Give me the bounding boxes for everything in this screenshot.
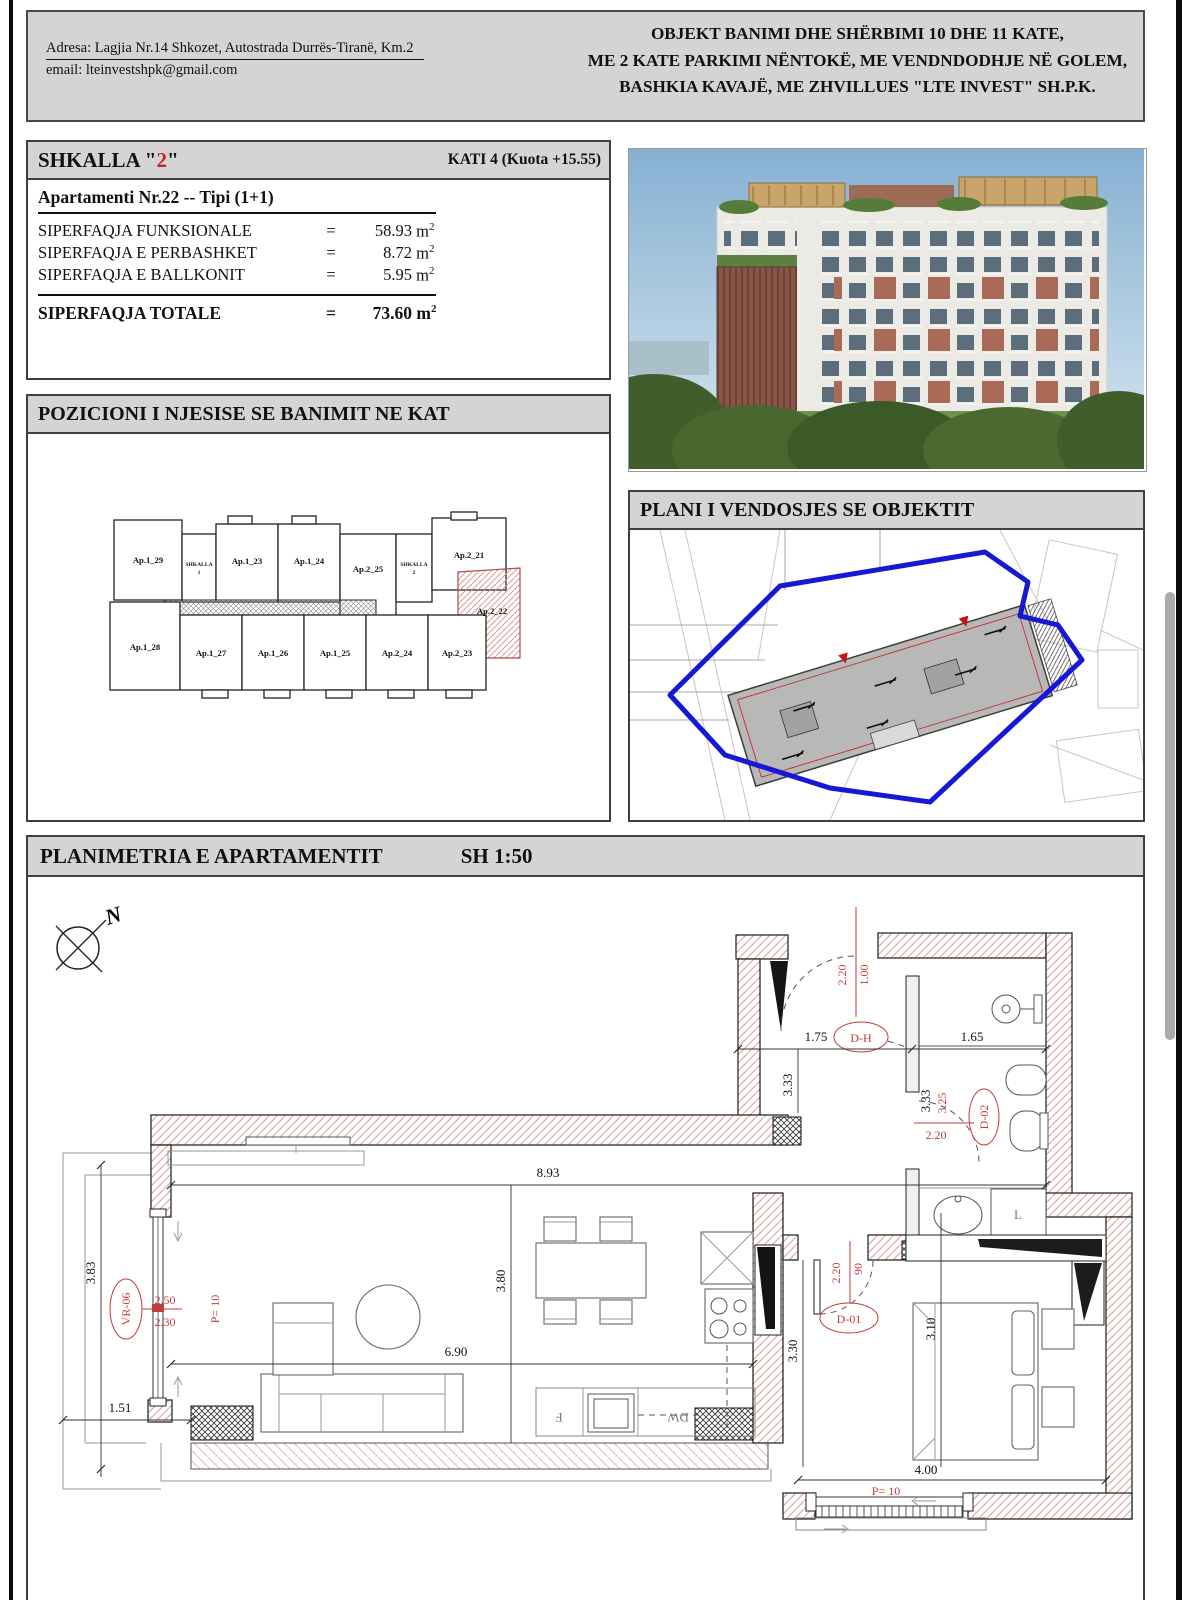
stair1-label: SHKALLA — [185, 562, 212, 568]
window-vr06 — [150, 1209, 182, 1406]
svg-text:N: N — [101, 901, 126, 930]
svg-text:6.90: 6.90 — [445, 1344, 468, 1359]
building-footprint — [726, 591, 1078, 786]
site-plan-title: PLANI I VENDOSJES SE OBJEKTIT — [630, 492, 1143, 530]
svg-text:D-H: D-H — [850, 1031, 872, 1045]
project-title-line1: OBJEKT BANIMI DHE SHËRBIMI 10 DHE 11 KAT… — [651, 24, 1064, 43]
svg-text:2.20: 2.20 — [835, 965, 849, 986]
unit-card-body: Apartamenti Nr.22 -- Tipi (1+1) SIPERFAQ… — [28, 180, 609, 325]
column — [773, 1117, 801, 1145]
tv-cabinet — [168, 1151, 364, 1165]
svg-text:3.10: 3.10 — [923, 1318, 938, 1341]
svg-text:D-01: D-01 — [837, 1312, 862, 1326]
svg-text:D-02: D-02 — [977, 1105, 991, 1130]
stair-number: 2 — [156, 148, 167, 172]
stair2-label: SHKALLA — [400, 562, 427, 568]
unit-label: Ap.1_28 — [130, 642, 161, 652]
svg-text:1.75: 1.75 — [805, 1029, 828, 1044]
project-title-line2: ME 2 KATE PARKIMI NËNTOKË, ME VENDNDODHJ… — [588, 51, 1127, 70]
svg-text:3.80: 3.80 — [493, 1270, 508, 1293]
unit-label: Ap.1_24 — [294, 556, 325, 566]
svg-text:3.33: 3.33 — [780, 1074, 795, 1097]
svg-text:2.20: 2.20 — [926, 1128, 947, 1142]
divider — [38, 212, 436, 214]
area-row: SIPERFAQJA FUNKSIONALE = 58.93 m2 — [38, 220, 595, 242]
svg-text:3.83: 3.83 — [83, 1262, 98, 1285]
svg-text:P= 10: P= 10 — [208, 1295, 222, 1323]
building-render-photo — [628, 148, 1147, 472]
svg-text:2.50: 2.50 — [155, 1293, 176, 1307]
nightstand — [1042, 1309, 1074, 1349]
svg-text:2.30: 2.30 — [155, 1315, 176, 1329]
page-left-edge — [9, 0, 13, 1600]
svg-text:2: 2 — [413, 570, 416, 576]
area-row: SIPERFAQJA E BALLKONIT = 5.95 m2 — [38, 264, 595, 286]
position-section: POZICIONI I NJESISE SE BANIMIT NE KAT — [26, 394, 611, 822]
building-render — [629, 149, 1144, 469]
svg-text:3.30: 3.30 — [785, 1340, 800, 1363]
unit-label: Ap.1_23 — [232, 556, 262, 566]
floor-key-plan: Ap.1_29 SHKALLA 1 Ap.1_23 Ap.1_24 Ap.2_2… — [106, 506, 534, 721]
unit-label: Ap.1_26 — [258, 648, 289, 658]
boiler-icon — [1006, 1065, 1046, 1095]
pillow — [1012, 1311, 1034, 1375]
unit-label: Ap.1_29 — [133, 555, 163, 565]
laundry-label: L — [1014, 1207, 1022, 1222]
apartment-plan-title: PLANIMETRIA E APARTAMENTIT SH 1:50 — [28, 837, 1143, 877]
toilet-icon — [1010, 1111, 1044, 1151]
svg-text:2.20: 2.20 — [829, 1263, 843, 1284]
area-row: SIPERFAQJA E PERBASHKET = 8.72 m2 — [38, 242, 595, 264]
vr06-labels: VR-06 2.50 2.30 P= 10 — [110, 1279, 222, 1339]
furniture: F DW — [168, 1137, 755, 1436]
roof-pergola — [749, 183, 845, 207]
scrollbar-track[interactable] — [1176, 0, 1182, 1600]
entry-door-dh: 2.20 1.00 D-H — [770, 907, 906, 1052]
unit-label: Ap.2_25 — [353, 564, 383, 574]
svg-text:4.00: 4.00 — [915, 1462, 938, 1477]
coffee-table — [356, 1285, 420, 1349]
balcony-slab — [191, 1443, 768, 1469]
unit-label: Ap.2_21 — [454, 550, 484, 560]
svg-text:3.25: 3.25 — [935, 1093, 949, 1114]
project-title-line3: BASHKIA KAVAJË, ME ZHVILLUES "LTE INVEST… — [619, 77, 1096, 96]
unit-label: Ap.1_25 — [320, 648, 350, 658]
divider — [38, 294, 436, 296]
apartment-plan-section: PLANIMETRIA E APARTAMENTIT SH 1:50 — [26, 835, 1145, 1600]
sea — [629, 341, 709, 375]
column — [695, 1408, 753, 1440]
unit-card-titlebar: SHKALLA "2" KATI 4 (Kuota +15.55) — [28, 142, 609, 180]
window-bedroom — [796, 1493, 986, 1533]
svg-text:P= 10: P= 10 — [872, 1484, 900, 1498]
apartment-floor-plan: N — [28, 877, 1143, 1600]
tower-planter — [717, 255, 797, 267]
chair — [544, 1300, 576, 1324]
svg-text:3.33: 3.33 — [918, 1090, 933, 1113]
stair-title: SHKALLA "2" — [38, 148, 179, 173]
svg-text:8.93: 8.93 — [537, 1165, 560, 1180]
site-plan — [630, 530, 1143, 820]
svg-text:1.65: 1.65 — [961, 1029, 984, 1044]
position-section-title: POZICIONI I NJESISE SE BANIMIT NE KAT — [28, 396, 609, 434]
header-address-block: Adresa: Lagjia Nr.14 Shkozet, Autostrada… — [28, 12, 424, 120]
address-line: Adresa: Lagjia Nr.14 Shkozet, Autostrada… — [46, 38, 424, 60]
scale-label: SH 1:50 — [461, 844, 533, 869]
dishwasher-label: DW — [666, 1410, 688, 1425]
chair — [600, 1217, 632, 1241]
tv — [246, 1137, 350, 1145]
fridge-label: F — [555, 1410, 562, 1425]
svg-text:1: 1 — [198, 570, 201, 576]
header: Adresa: Lagjia Nr.14 Shkozet, Autostrada… — [26, 10, 1145, 122]
sofa — [261, 1374, 463, 1432]
unit-label: Ap.1_27 — [196, 648, 227, 658]
unit-label: Ap.2_23 — [442, 648, 472, 658]
dining-table — [536, 1243, 646, 1298]
project-title: OBJEKT BANIMI DHE SHËRBIMI 10 DHE 11 KAT… — [588, 12, 1143, 120]
document-page: Adresa: Lagjia Nr.14 Shkozet, Autostrada… — [0, 0, 1182, 1600]
svg-text:1.51: 1.51 — [109, 1400, 132, 1415]
column — [191, 1406, 253, 1440]
pillow — [1012, 1385, 1034, 1449]
chair — [600, 1300, 632, 1324]
email-line: email: lteinvestshpk@gmail.com — [46, 62, 237, 78]
svg-text:VR-06: VR-06 — [119, 1293, 133, 1326]
floor-label: KATI 4 (Kuota +15.55) — [448, 151, 601, 169]
bath-door-d02: 3.33 3.25 2.20 D-02 — [914, 1089, 999, 1163]
total-area-row: SIPERFAQJA TOTALE = 73.60 m2 — [38, 302, 595, 325]
apartment-type-label: Apartamenti Nr.22 -- Tipi (1+1) — [38, 185, 595, 208]
nightstand — [1042, 1387, 1074, 1427]
site-plan-section: PLANI I VENDOSJES SE OBJEKTIT — [628, 490, 1145, 822]
unit-label-highlight: Ap.2_22 — [477, 606, 507, 616]
unit-label: Ap.2_24 — [382, 648, 413, 658]
svg-text:1.00: 1.00 — [857, 965, 871, 986]
chair — [544, 1217, 576, 1241]
unit-summary-card: SHKALLA "2" KATI 4 (Kuota +15.55) Aparta… — [26, 140, 611, 380]
svg-text:90: 90 — [851, 1263, 865, 1275]
north-arrow-icon: N — [56, 901, 126, 972]
scrollbar-thumb[interactable] — [1165, 592, 1175, 1040]
